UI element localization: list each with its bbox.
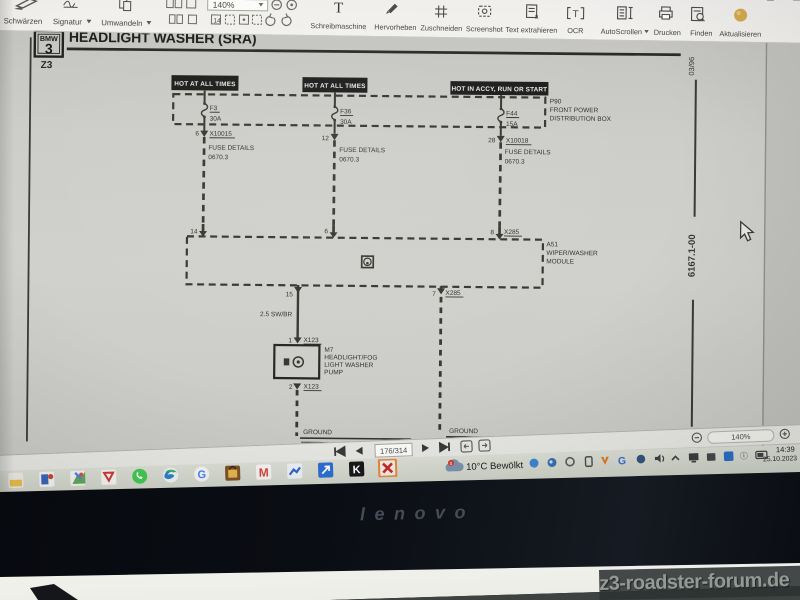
- svg-text:HOT IN ACCY, RUN OR START: HOT IN ACCY, RUN OR START: [452, 86, 548, 94]
- svg-text:12: 12: [322, 135, 330, 142]
- svg-text:14:39: 14:39: [776, 445, 795, 455]
- svg-text:HOT AT ALL TIMES: HOT AT ALL TIMES: [174, 81, 236, 89]
- svg-text:2: 2: [289, 384, 293, 391]
- svg-text:1: 1: [288, 337, 292, 344]
- svg-text:FRONT POWER: FRONT POWER: [550, 107, 599, 114]
- svg-text:6: 6: [195, 130, 199, 137]
- svg-text:FUSE DETAILS: FUSE DETAILS: [208, 145, 254, 152]
- svg-text:G: G: [618, 455, 627, 467]
- svg-text:28: 28: [488, 137, 496, 144]
- svg-text:F3: F3: [210, 105, 218, 112]
- svg-text:G: G: [197, 469, 206, 481]
- svg-text:Aktualisieren: Aktualisieren: [719, 29, 761, 39]
- svg-text:HEADLIGHT/FOG: HEADLIGHT/FOG: [324, 354, 377, 362]
- svg-text:Screenshot: Screenshot: [466, 24, 503, 34]
- svg-text:6: 6: [324, 228, 328, 235]
- svg-text:Signatur: Signatur: [53, 17, 83, 26]
- svg-text:WIPER/WASHER: WIPER/WASHER: [546, 250, 598, 257]
- svg-text:0670.3: 0670.3: [208, 154, 228, 161]
- svg-text:7: 7: [432, 291, 436, 298]
- svg-text:GROUND: GROUND: [449, 428, 478, 435]
- svg-text:X123: X123: [303, 337, 319, 344]
- svg-text:Finden: Finden: [690, 28, 712, 37]
- svg-text:140%: 140%: [731, 432, 751, 442]
- svg-text:Umwandeln: Umwandeln: [101, 18, 142, 28]
- svg-text:FUSE DETAILS: FUSE DETAILS: [505, 149, 551, 156]
- svg-text:MODULE: MODULE: [546, 258, 575, 265]
- svg-text:Zuschneiden: Zuschneiden: [420, 23, 462, 33]
- svg-text:2.5 SW/BR: 2.5 SW/BR: [260, 311, 293, 318]
- svg-text:14: 14: [190, 228, 198, 235]
- svg-text:Schreibmaschine: Schreibmaschine: [310, 21, 366, 31]
- svg-text:25.10.2023: 25.10.2023: [763, 455, 797, 463]
- svg-text:M: M: [258, 465, 268, 479]
- svg-text:140%: 140%: [213, 0, 235, 10]
- svg-text:8: 8: [490, 229, 494, 236]
- svg-text:AutoScrollen: AutoScrollen: [601, 27, 643, 37]
- svg-text:FUSE DETAILS: FUSE DETAILS: [339, 147, 385, 154]
- svg-text:X10018: X10018: [506, 137, 529, 144]
- svg-text:Drucken: Drucken: [654, 28, 681, 37]
- svg-text:K: K: [353, 464, 361, 476]
- svg-text:F44: F44: [506, 110, 518, 117]
- svg-text:T: T: [572, 9, 578, 20]
- svg-text:M7: M7: [324, 347, 333, 354]
- svg-text:0670.3: 0670.3: [505, 158, 525, 165]
- svg-text:14: 14: [213, 18, 221, 25]
- svg-text:LIGHT WASHER: LIGHT WASHER: [324, 362, 373, 369]
- svg-text:Hervorheben: Hervorheben: [374, 22, 416, 32]
- svg-text:X123: X123: [304, 384, 320, 391]
- svg-text:30A: 30A: [340, 119, 352, 126]
- svg-text:Text extrahieren: Text extrahieren: [505, 25, 557, 35]
- svg-text:X10015: X10015: [209, 131, 232, 138]
- svg-text:176/314: 176/314: [380, 446, 407, 456]
- svg-text:T: T: [334, 0, 343, 16]
- svg-text:Schwärzen: Schwärzen: [4, 16, 43, 26]
- svg-text:0670.3: 0670.3: [339, 156, 359, 163]
- svg-text:X285: X285: [504, 229, 520, 236]
- svg-text:Z3: Z3: [41, 60, 53, 71]
- svg-text:OCR: OCR: [567, 26, 583, 35]
- svg-text:6167.1-00: 6167.1-00: [687, 234, 698, 277]
- svg-text:15A: 15A: [506, 121, 518, 128]
- svg-text:X285: X285: [445, 290, 461, 297]
- svg-text:P90: P90: [550, 98, 562, 105]
- svg-text:GROUND: GROUND: [303, 429, 332, 436]
- svg-text:PUMP: PUMP: [324, 369, 343, 376]
- svg-text:3: 3: [45, 41, 53, 57]
- svg-text:03/96: 03/96: [687, 57, 696, 76]
- svg-text:30A: 30A: [210, 116, 222, 123]
- svg-text:DISTRIBUTION BOX: DISTRIBUTION BOX: [550, 115, 612, 123]
- svg-text:HOT AT ALL TIMES: HOT AT ALL TIMES: [304, 83, 366, 91]
- svg-text:A51: A51: [546, 241, 558, 248]
- svg-text:ⓘ: ⓘ: [740, 452, 748, 461]
- svg-text:F36: F36: [340, 108, 352, 115]
- svg-text:a: a: [534, 13, 538, 20]
- svg-text:15: 15: [286, 291, 294, 298]
- svg-text:10°C Bewölkt: 10°C Bewölkt: [466, 460, 524, 473]
